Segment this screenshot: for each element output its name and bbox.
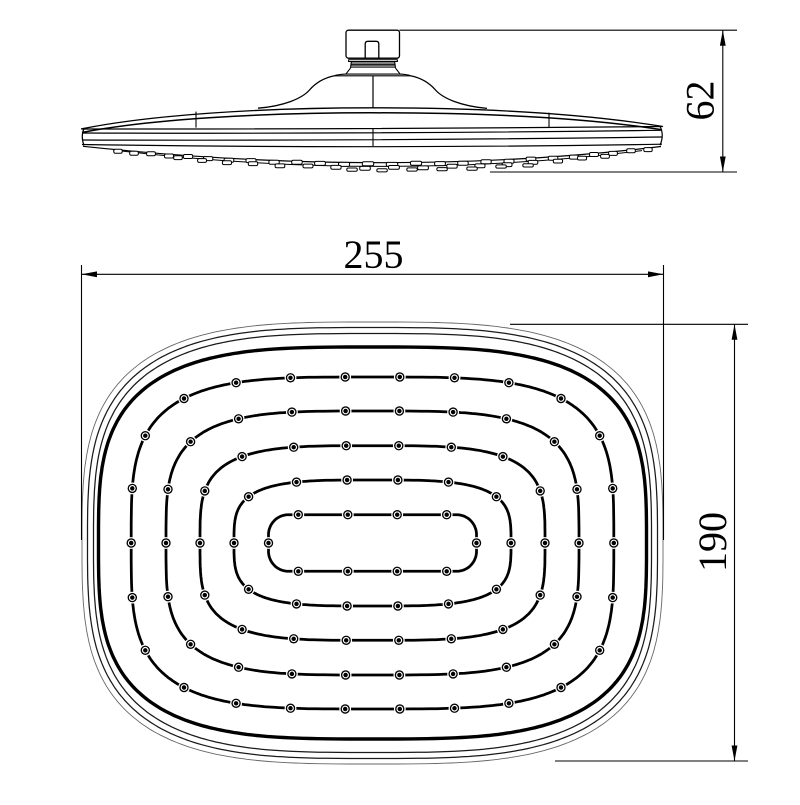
svg-text:255: 255	[344, 232, 404, 277]
svg-text:62: 62	[678, 81, 723, 121]
svg-text:190: 190	[690, 512, 735, 572]
